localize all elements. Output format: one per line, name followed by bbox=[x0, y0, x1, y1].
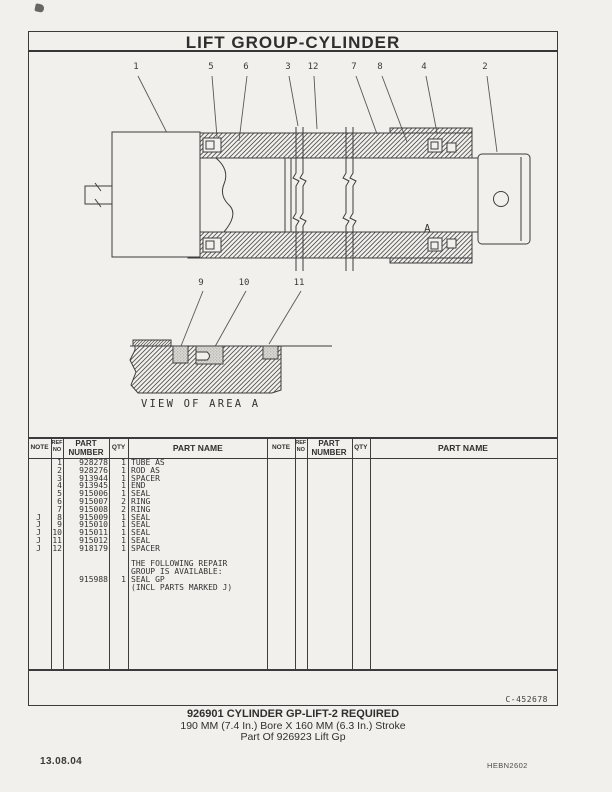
callout-11: 11 bbox=[294, 278, 305, 288]
cavity-wall bbox=[216, 158, 233, 232]
cell-name: SPACER bbox=[131, 475, 558, 483]
head-end-block bbox=[112, 132, 200, 257]
callout-3: 3 bbox=[285, 62, 290, 72]
cell-ref: 12 bbox=[49, 545, 62, 553]
cell-part: 915988 bbox=[64, 576, 108, 584]
parts-table-rows: 19282781TUBE AS29282761ROD AS39139441SPA… bbox=[28, 459, 558, 592]
table-row: THE FOLLOWING REPAIR bbox=[28, 560, 558, 568]
gland-lip-bottom bbox=[390, 258, 472, 263]
cell-name: TUBE AS bbox=[131, 459, 558, 467]
callout-8: 8 bbox=[377, 62, 382, 72]
cell-qty: 1 bbox=[109, 545, 126, 553]
callout-12: 12 bbox=[308, 62, 319, 72]
col-header-ref: REF bbox=[52, 441, 63, 447]
seal-groove-9 bbox=[173, 346, 188, 363]
callout-4: 4 bbox=[421, 62, 426, 72]
callout-2: 2 bbox=[482, 62, 487, 72]
cell-name: RING bbox=[131, 498, 558, 506]
leader-lines-area bbox=[181, 291, 301, 352]
gland-lip-top bbox=[390, 128, 472, 133]
col-header-note-2: NOTE bbox=[272, 445, 290, 452]
mating-strip bbox=[133, 340, 171, 346]
area-a-detail bbox=[130, 340, 332, 393]
seal-groove-11 bbox=[263, 346, 278, 359]
cell-part: 918179 bbox=[64, 545, 108, 553]
col-header-qty: QTY bbox=[112, 445, 125, 452]
cell-qty: 1 bbox=[109, 576, 126, 584]
cell-name: SPACER bbox=[131, 545, 558, 553]
caption-part-of: Part Of 926923 Lift Gp bbox=[28, 731, 558, 743]
callout-5: 5 bbox=[208, 62, 213, 72]
table-bottom-rule bbox=[28, 669, 558, 671]
area-a-marker: A bbox=[424, 222, 431, 235]
doc-number: C-452678 bbox=[440, 695, 548, 704]
caption-group-title: 926901 CYLINDER GP-LIFT-2 REQUIRED bbox=[28, 708, 558, 720]
col-header-name: PART NAME bbox=[173, 444, 223, 453]
callout-6: 6 bbox=[243, 62, 248, 72]
callout-10: 10 bbox=[239, 278, 250, 288]
cell-name: SEAL bbox=[131, 537, 558, 545]
cell-name: SEAL bbox=[131, 521, 558, 529]
callout-1: 1 bbox=[133, 62, 138, 72]
cell-name: SEAL bbox=[131, 490, 558, 498]
table-row: J129181791SPACER bbox=[28, 545, 558, 553]
col-header-name-2: PART NAME bbox=[438, 444, 488, 453]
area-a-caption: VIEW OF AREA A bbox=[141, 398, 260, 410]
cell-note: J bbox=[28, 545, 49, 553]
cell-name: END bbox=[131, 482, 558, 490]
revision-date: 13.08.04 bbox=[40, 756, 82, 767]
callout-9: 9 bbox=[198, 278, 203, 288]
col-header-note: NOTE bbox=[30, 445, 48, 452]
cell-name: (INCL PARTS MARKED J) bbox=[131, 584, 558, 592]
cell-name: SEAL bbox=[131, 514, 558, 522]
rod-end-hole bbox=[494, 192, 509, 207]
cell-name: ROD AS bbox=[131, 467, 558, 475]
seal-lip bbox=[196, 352, 210, 360]
col-header-ref-2: REF bbox=[295, 441, 306, 447]
table-top-rule bbox=[28, 437, 558, 439]
cylinder-cross-section bbox=[85, 127, 530, 271]
cell-name: RING bbox=[131, 506, 558, 514]
form-code: HEBN2602 bbox=[487, 761, 528, 770]
cylinder-diagram bbox=[0, 0, 612, 792]
cell-name: GROUP IS AVAILABLE: bbox=[131, 568, 558, 576]
cell-name: SEAL bbox=[131, 529, 558, 537]
col-header-qty-2: QTY bbox=[354, 445, 367, 452]
table-row: (INCL PARTS MARKED J) bbox=[28, 584, 558, 592]
port bbox=[85, 186, 112, 204]
callout-7: 7 bbox=[351, 62, 356, 72]
table-row bbox=[28, 553, 558, 561]
table-row: 9159881SEAL GP bbox=[28, 576, 558, 584]
